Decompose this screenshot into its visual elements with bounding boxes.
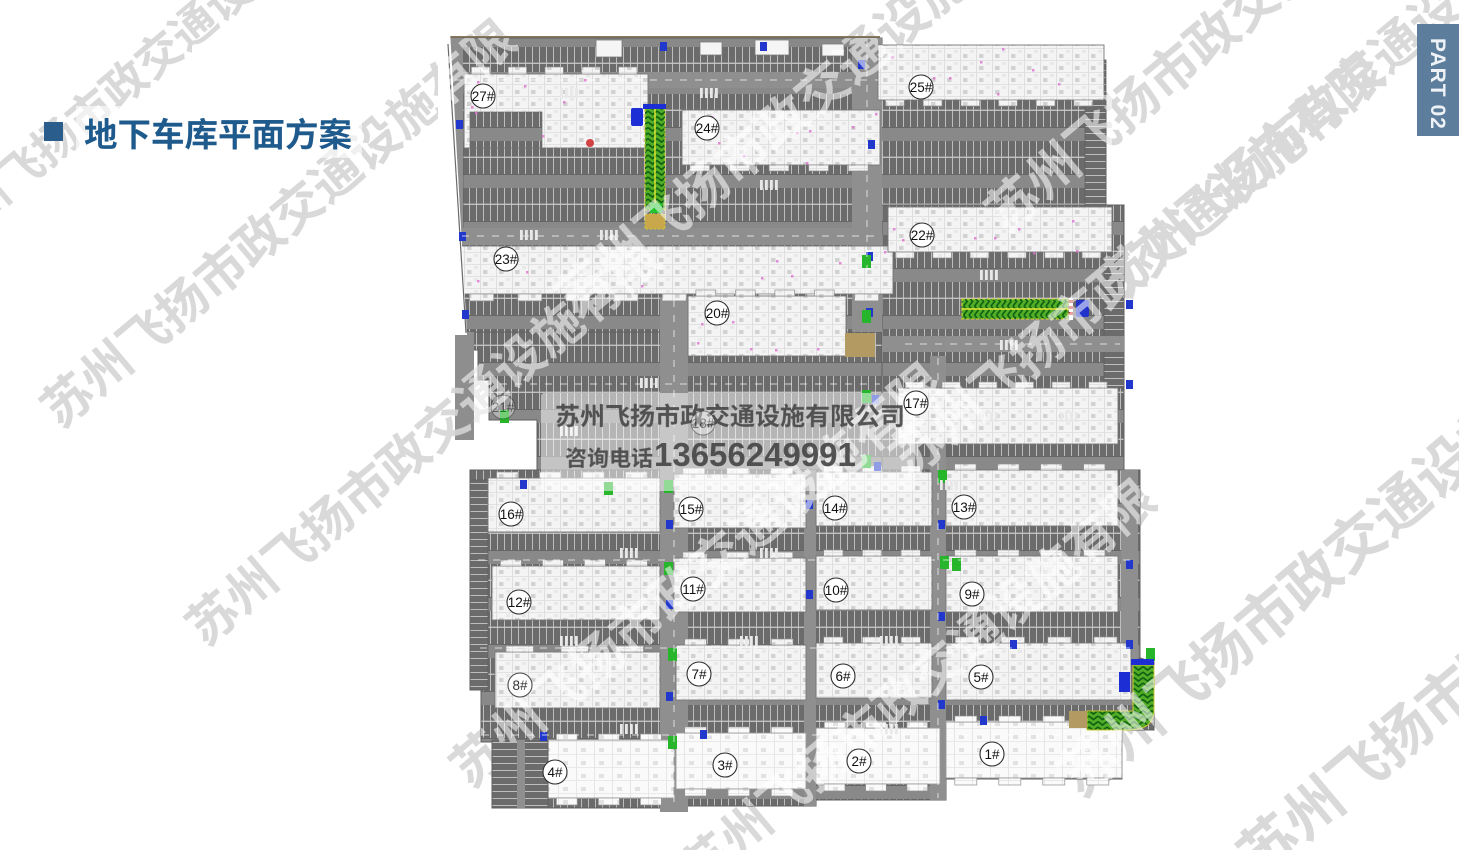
svg-text:6#: 6# [835,669,851,684]
svg-text:22#: 22# [911,228,934,243]
svg-text:21#: 21# [492,400,515,415]
svg-text:11#: 11# [682,582,704,597]
svg-text:27#: 27# [472,89,495,104]
svg-text:16#: 16# [500,507,523,522]
svg-text:4#: 4# [547,765,563,780]
svg-text:8#: 8# [512,678,528,693]
svg-text:15#: 15# [680,502,703,517]
svg-text:7#: 7# [691,667,707,682]
svg-text:13#: 13# [953,500,976,515]
svg-text:20#: 20# [706,306,729,321]
svg-text:9#: 9# [964,587,980,602]
svg-text:3#: 3# [717,758,733,773]
svg-text:17#: 17# [905,396,928,411]
svg-text:13656249991: 13656249991 [654,436,856,473]
svg-text:24#: 24# [696,121,719,136]
svg-text:14#: 14# [824,501,847,516]
svg-text:12#: 12# [508,595,531,610]
svg-text:1#: 1# [984,747,1000,762]
svg-text:10#: 10# [825,583,848,598]
svg-text:23#: 23# [495,252,518,267]
svg-text:25#: 25# [910,80,933,95]
svg-text:18#: 18# [692,416,715,431]
svg-text:2#: 2# [851,754,867,769]
svg-text:PART 02: PART 02 [1426,38,1449,130]
svg-text:5#: 5# [973,670,989,685]
